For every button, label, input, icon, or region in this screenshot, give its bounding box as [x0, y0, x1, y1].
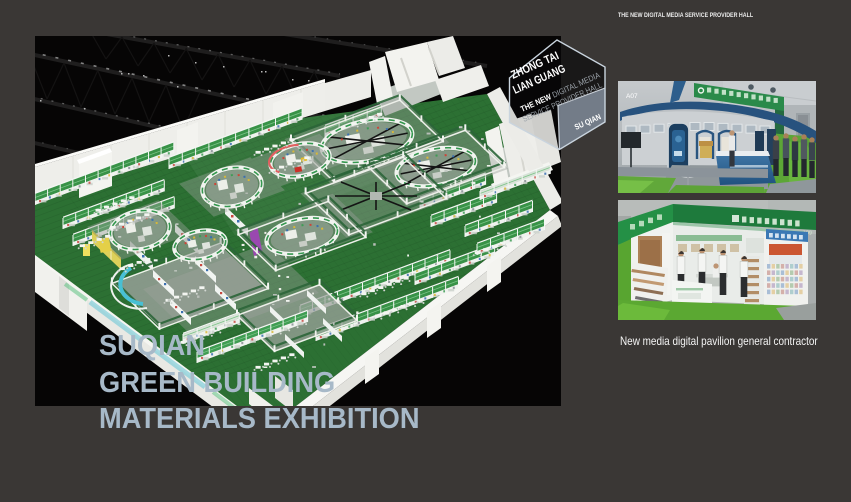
svg-text:A07: A07	[626, 93, 638, 100]
